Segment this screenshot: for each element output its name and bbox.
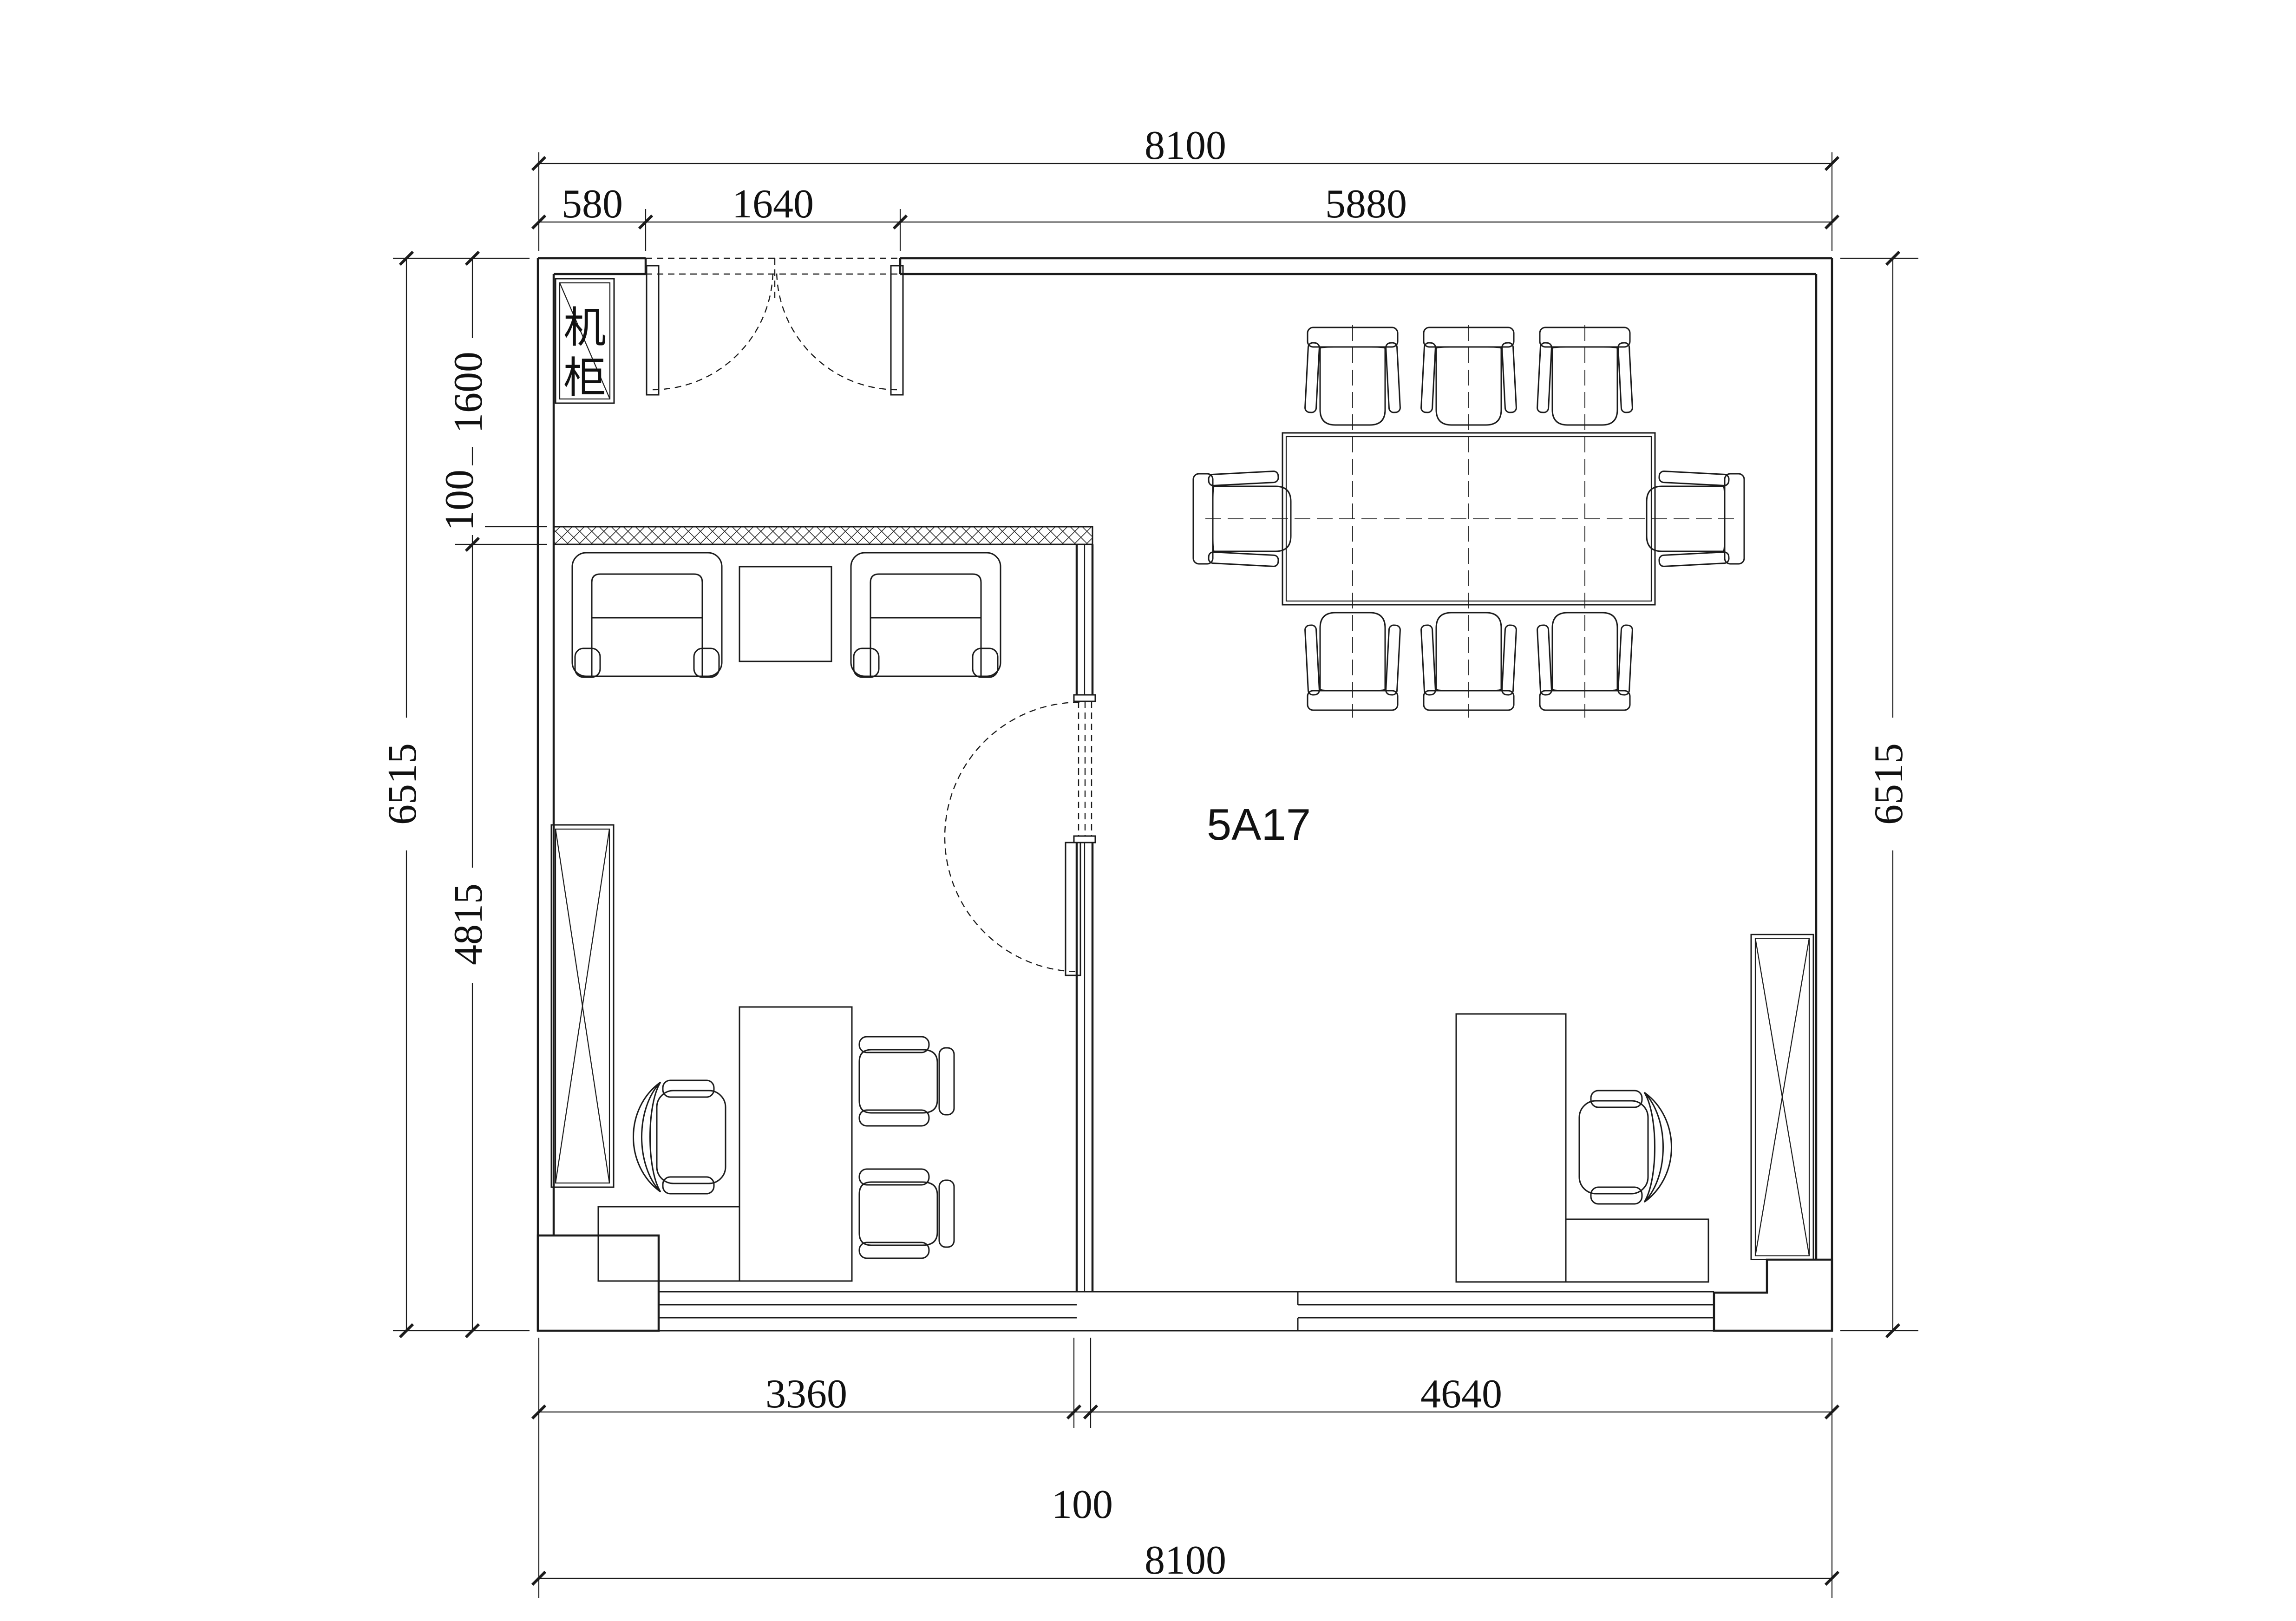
- partition-door-closed-dashed: [1079, 701, 1092, 836]
- left-desk-return: [598, 1207, 739, 1281]
- sofa-left: [572, 553, 722, 677]
- entry-double-door: [646, 258, 903, 395]
- guest-chair-2: [859, 1169, 954, 1258]
- equipment-cabinet: 机 柜: [556, 279, 614, 403]
- bottom-right-pier: [1714, 1260, 1832, 1331]
- partition-jamb-bottom: [1074, 836, 1095, 843]
- entry-door-swing-left: [653, 269, 773, 390]
- window-mullions: [659, 1292, 1714, 1331]
- left-exec-chair: [634, 1080, 726, 1194]
- right-wall-cabinet: [1751, 935, 1813, 1260]
- dim-right-overall: 6515: [1866, 743, 1911, 825]
- side-table: [739, 567, 831, 661]
- left-office: [551, 825, 954, 1281]
- entry-door-leaf-right: [891, 266, 903, 395]
- dim-bottom-seg2: 100: [1052, 1482, 1113, 1527]
- dim-left-seg3: 4815: [446, 883, 491, 965]
- partition-door-swing: [945, 702, 1079, 972]
- bottom-window-band: [659, 1292, 1714, 1331]
- cabinet-label-char-1: 机: [563, 303, 606, 353]
- entry-opening-jambs: [646, 258, 900, 274]
- right-desk-return: [1566, 1219, 1708, 1282]
- partition-door-leaf: [1066, 843, 1080, 975]
- entry-door-swing-right: [777, 269, 897, 390]
- right-exec-chair: [1579, 1091, 1672, 1204]
- entry-opening-dashed: [646, 258, 900, 274]
- dim-top-seg3: 5880: [1325, 182, 1407, 227]
- dim-bottom-seg1: 3360: [765, 1372, 847, 1417]
- conference-area: [1193, 325, 1744, 718]
- exterior-walls: [538, 258, 1832, 1331]
- left-wall-cabinet: [551, 825, 614, 1187]
- dim-top-overall: 8100: [1145, 123, 1226, 168]
- dimension-bottom: 3360 4640 100 8100: [532, 1338, 1838, 1598]
- partition-jamb-top: [1074, 695, 1095, 701]
- right-office: [1456, 935, 1813, 1282]
- lounge-area: [572, 553, 1001, 677]
- room-label: 5A17: [1207, 800, 1311, 850]
- dim-bottom-seg3: 4640: [1420, 1372, 1502, 1417]
- right-desk-main: [1456, 1014, 1566, 1282]
- dim-top-seg2: 1640: [732, 182, 814, 227]
- cabinet-label-char-2: 柜: [563, 353, 606, 403]
- hatched-partition-wall: [554, 527, 1092, 544]
- floor-plan-sheet: 机 柜: [0, 0, 2296, 1621]
- dim-top-seg1: 580: [562, 182, 623, 227]
- left-desk-main: [739, 1007, 852, 1281]
- dim-bottom-overall: 8100: [1145, 1538, 1226, 1583]
- dimension-right: 6515: [1840, 252, 1918, 1337]
- dim-left-overall: 6515: [380, 743, 425, 825]
- dimension-left: 6515 1600 100 4815: [380, 252, 547, 1337]
- partition-wall: [945, 544, 1095, 1292]
- hatch-wall-band: [554, 527, 1092, 544]
- entry-door-leaf-left: [647, 266, 659, 395]
- floor-plan-canvas: 机 柜: [0, 0, 2296, 1621]
- guest-chair-1: [859, 1037, 954, 1126]
- dimension-top: 8100 580 1640 5880: [532, 123, 1838, 251]
- dim-left-seg1: 1600: [446, 352, 491, 433]
- sofa-right: [851, 553, 1001, 677]
- dim-left-seg2: 100: [437, 470, 482, 531]
